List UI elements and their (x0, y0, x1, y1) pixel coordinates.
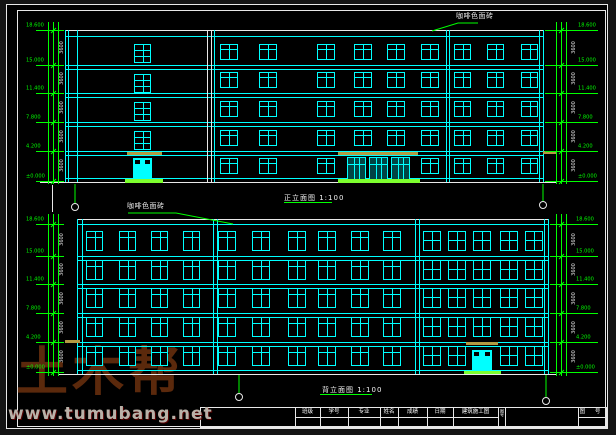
title-block-field-label: 姓名 (380, 408, 398, 417)
title-block-line (578, 417, 606, 418)
title-block-line (200, 427, 606, 428)
title-block-line (505, 407, 506, 427)
axis-bubble (543, 398, 550, 405)
title-block-field-label: 成绩 (398, 408, 427, 417)
title-block-field-label: 学号 (320, 408, 348, 417)
leader-lines-layer (0, 0, 616, 435)
title-block-field-label: 日期 (427, 408, 453, 417)
front-facade-note: 咖啡色面砖 (456, 11, 494, 21)
watermark-site-url: www.tumubang.net (8, 404, 213, 424)
axis-bubble (72, 204, 79, 211)
back-title-underline (320, 394, 372, 395)
note-leader-line (432, 23, 478, 31)
note-leader-line (128, 213, 233, 224)
front-title-underline (284, 202, 332, 203)
title-block-side-label: 图号 (499, 409, 505, 427)
title-block-field-label: 班级 (295, 408, 320, 417)
cad-drawing-viewer: 土木帮 18.60015.00011.4007.8004.200±0.00036… (0, 0, 616, 435)
title-block-field-label: 专业 (348, 408, 380, 417)
title-block-drawing-number-label: 图 号 (578, 408, 606, 417)
title-block-line (295, 417, 498, 418)
axis-bubble (540, 202, 547, 209)
axis-bubble (236, 394, 243, 401)
title-block-field-label: 建筑施工图 (453, 408, 498, 417)
back-facade-note: 咖啡色面砖 (127, 201, 165, 211)
title-block-line (606, 407, 607, 428)
